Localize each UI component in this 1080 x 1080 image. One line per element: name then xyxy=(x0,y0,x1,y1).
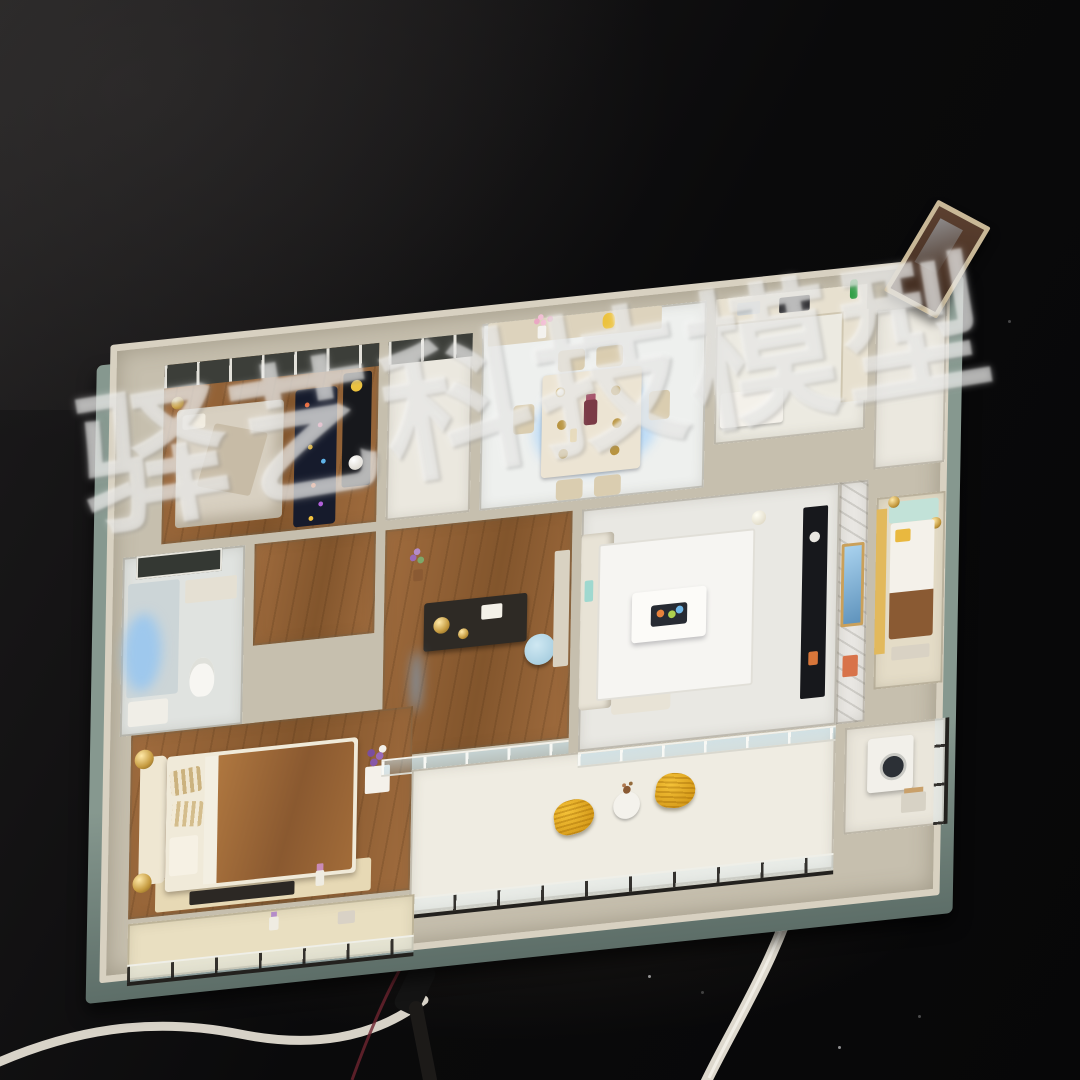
television xyxy=(840,542,864,628)
place-setting-plates xyxy=(556,387,566,398)
floor-plan xyxy=(99,257,950,984)
vase-flowers-pink xyxy=(315,870,324,886)
kitchen-sink xyxy=(737,301,760,316)
gold-bowl xyxy=(458,628,469,640)
room-bedroom-right xyxy=(874,491,946,690)
console-decor-orange xyxy=(808,651,818,666)
tv-marble-wall xyxy=(836,480,869,725)
rug-pattern-dots xyxy=(305,402,310,407)
plant-foliage xyxy=(410,554,417,561)
dining-chair xyxy=(596,344,623,368)
round-side-table xyxy=(613,790,640,820)
floor-lamp-gold xyxy=(171,396,184,410)
sideboard xyxy=(488,305,662,346)
bathroom-window xyxy=(136,548,222,580)
gold-orb-decor xyxy=(433,616,450,634)
toilet xyxy=(189,656,214,697)
room-bathroom xyxy=(120,545,245,737)
console-decor-white xyxy=(809,531,820,543)
yellow-wardrobe xyxy=(874,509,887,655)
dining-table xyxy=(541,365,642,478)
dining-chair xyxy=(649,389,671,420)
pillow xyxy=(182,413,205,430)
lounge-chair-yellow xyxy=(551,794,596,839)
striped-pillow xyxy=(171,801,204,827)
galaxy-rug xyxy=(293,386,337,528)
room-bedroom-top-left xyxy=(161,343,379,544)
blanket-brown xyxy=(889,589,934,640)
desk-chair-blue xyxy=(524,632,555,666)
duvet-brown xyxy=(214,741,354,883)
kitchen-island xyxy=(720,387,784,428)
floor-lamp-white xyxy=(752,510,767,526)
room-dining xyxy=(479,301,707,511)
teal-cushion xyxy=(584,580,593,602)
apartment-model xyxy=(99,257,950,984)
table-centerpiece-flowers xyxy=(584,399,598,426)
stool xyxy=(338,910,355,924)
striped-pillow xyxy=(169,766,202,797)
planter-flowers xyxy=(901,791,926,813)
lounge-chair-yellow xyxy=(653,772,698,808)
drink-bottle xyxy=(570,428,577,442)
dining-chair xyxy=(594,474,621,497)
kitchen-counter-right xyxy=(840,309,868,403)
vanity xyxy=(185,575,237,604)
display-cabinet-black xyxy=(341,371,372,488)
photo-of-apartment-model: 驿艺科技模型 xyxy=(0,0,1080,1080)
wall-art xyxy=(842,655,858,678)
ball-lamp-white xyxy=(348,455,363,471)
balcony-railing xyxy=(409,853,833,919)
bench xyxy=(891,643,929,661)
washer-door xyxy=(880,752,907,782)
duvet-fold-white xyxy=(203,755,219,884)
white-pillow xyxy=(169,835,198,877)
dining-chair xyxy=(513,404,535,435)
toy-figurine xyxy=(351,379,363,392)
open-book xyxy=(481,603,502,620)
side-railing xyxy=(933,717,949,825)
corridor xyxy=(253,531,376,645)
coffee-table xyxy=(631,585,706,643)
hallway-top xyxy=(386,333,473,521)
room-kitchen xyxy=(714,284,867,445)
utility-nook xyxy=(843,718,945,835)
green-bottle xyxy=(850,279,858,299)
headboard-finial-gold xyxy=(132,873,151,894)
flower-vase-pink xyxy=(538,325,547,338)
led-strip-study xyxy=(411,650,422,713)
bath-mat xyxy=(128,698,169,727)
washing-machine xyxy=(867,735,914,794)
room-entry xyxy=(874,302,947,469)
dining-chair xyxy=(558,348,585,372)
tv-screen xyxy=(843,545,862,624)
desk-black xyxy=(423,593,527,652)
bed-right xyxy=(889,519,935,640)
bookshelf xyxy=(553,550,570,668)
room-living xyxy=(578,483,840,752)
room-master-bedroom xyxy=(128,706,413,919)
plant-pot xyxy=(413,569,423,582)
cooktop xyxy=(779,295,810,314)
dining-chair xyxy=(556,478,583,501)
yellow-figurine xyxy=(603,312,616,329)
tv-console-black xyxy=(800,505,828,699)
pillow-yellow xyxy=(895,528,910,542)
master-headboard xyxy=(138,755,167,885)
door-glass-pane xyxy=(914,218,962,274)
potted-plant xyxy=(269,916,279,931)
cable-plug-lead xyxy=(416,1008,430,1080)
master-bed xyxy=(165,737,358,892)
hall-cabinet xyxy=(388,333,472,365)
purple-flowers xyxy=(367,749,375,758)
